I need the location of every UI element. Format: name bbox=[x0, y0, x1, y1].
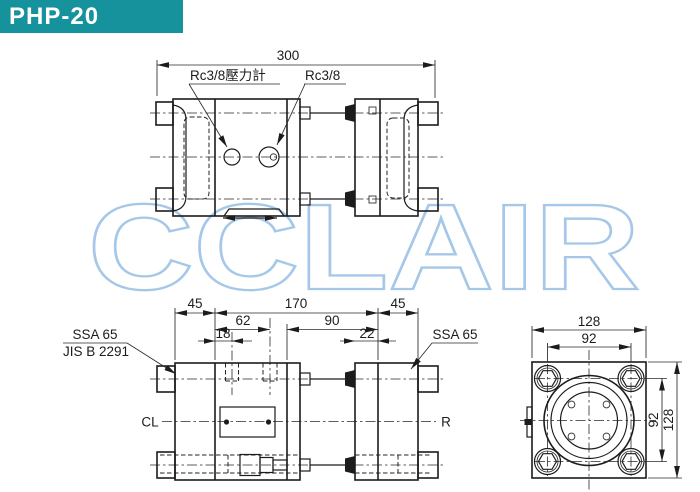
dim-overall-length-text: 300 bbox=[277, 48, 300, 63]
dim-width-overall: 128 bbox=[532, 314, 646, 330]
technical-drawing: CCLAIR bbox=[0, 0, 700, 492]
dim-body-length-text: 170 bbox=[285, 296, 308, 311]
flange-standard-name: SSA 65 bbox=[72, 327, 117, 342]
end-view: 128 92 92 128 bbox=[520, 314, 682, 490]
dim-flange-right-text: 45 bbox=[390, 296, 405, 311]
dim-bolt-spacing-h-text: 92 bbox=[581, 331, 596, 346]
dim-bolt-spacing-v-text: 92 bbox=[646, 412, 661, 427]
flange-standard-name-right: SSA 65 bbox=[432, 327, 477, 342]
dim-width-overall-text: 128 bbox=[578, 314, 601, 329]
dim-rear-flange-offset: 22 bbox=[340, 326, 396, 344]
centerline-label-right: R bbox=[441, 415, 451, 430]
dim-bolt-spacing-h: 92 bbox=[548, 331, 632, 347]
nameplate bbox=[220, 407, 275, 437]
dim-flange-left-text: 45 bbox=[187, 296, 202, 311]
flange-standard-code: JIS B 2291 bbox=[63, 344, 129, 359]
dim-bolt-spacing-v: 92 bbox=[646, 379, 662, 462]
dim-port2-offset-text: 62 bbox=[235, 313, 250, 328]
centerline-label-left: CL bbox=[141, 415, 159, 430]
port-label-gauge-text: Rc3/8壓力計 bbox=[190, 68, 266, 83]
port-label-gauge: Rc3/8壓力計 bbox=[189, 68, 280, 147]
dim-rear-length-text: 90 bbox=[324, 313, 339, 328]
dim-height-overall-text: 128 bbox=[661, 409, 676, 432]
port-label-thread-text: Rc3/8 bbox=[305, 68, 340, 83]
dim-port1-offset: 18 bbox=[198, 326, 252, 344]
side-view: 45 170 45 62 90 bbox=[63, 296, 478, 480]
flange-standard-label-right: SSA 65 bbox=[411, 327, 478, 369]
flange-standard-label-left: SSA 65 JIS B 2291 bbox=[63, 327, 176, 374]
dim-height-overall: 128 bbox=[661, 362, 677, 478]
model-badge: PHP-20 bbox=[0, 0, 183, 33]
drawing-sheet: CCLAIR bbox=[0, 0, 700, 492]
dim-port1-offset-text: 18 bbox=[215, 326, 230, 341]
end-view-outline bbox=[525, 362, 647, 478]
dim-rear-flange-offset-text: 22 bbox=[359, 326, 374, 341]
